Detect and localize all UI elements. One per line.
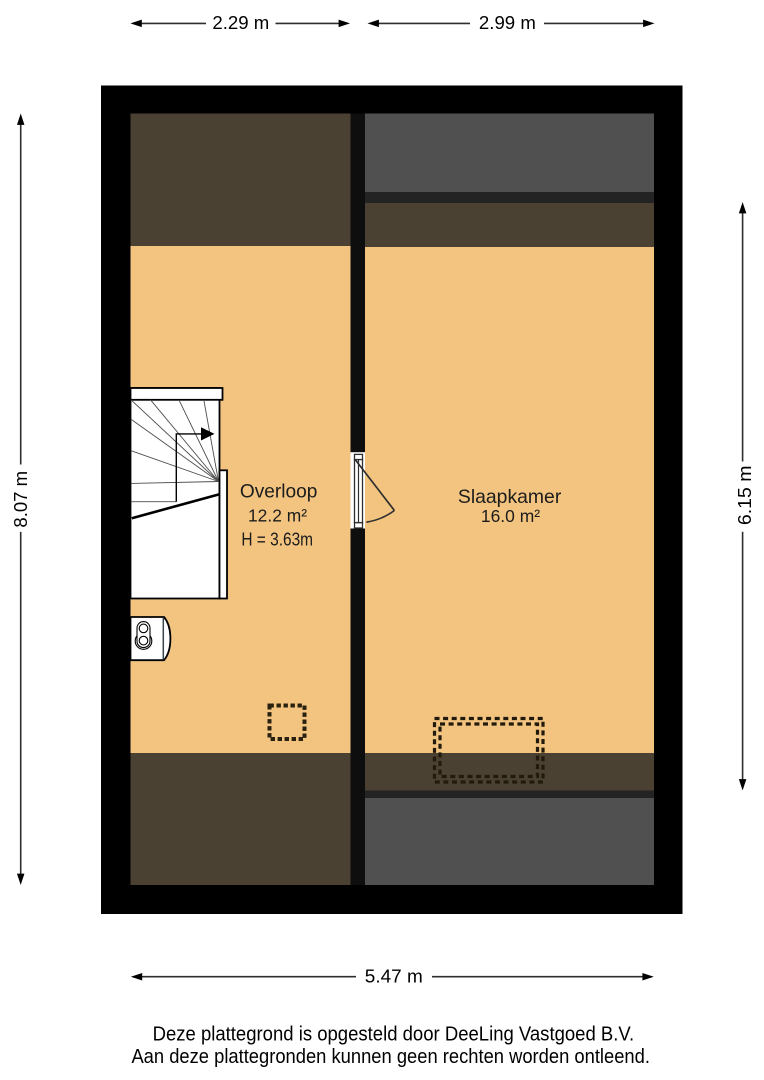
svg-text:Overloop: Overloop [240,482,318,503]
svg-text:8.07 m: 8.07 m [11,471,31,528]
svg-text:Aan deze plattegronden kunnen: Aan deze plattegronden kunnen geen recht… [131,1046,650,1068]
svg-text:Slaapkamer: Slaapkamer [458,486,562,508]
svg-text:6.15 m: 6.15 m [735,466,755,526]
svg-text:2.29 m: 2.29 m [212,13,269,33]
svg-text:2.99 m: 2.99 m [479,13,536,33]
svg-text:12.2 m²: 12.2 m² [248,506,307,526]
svg-text:16.0 m²: 16.0 m² [481,506,540,526]
svg-text:5.47 m: 5.47 m [365,966,423,986]
svg-text:H = 3.63m: H = 3.63m [241,529,313,549]
svg-text:Deze plattegrond is opgesteld: Deze plattegrond is opgesteld door DeeLi… [153,1024,635,1046]
